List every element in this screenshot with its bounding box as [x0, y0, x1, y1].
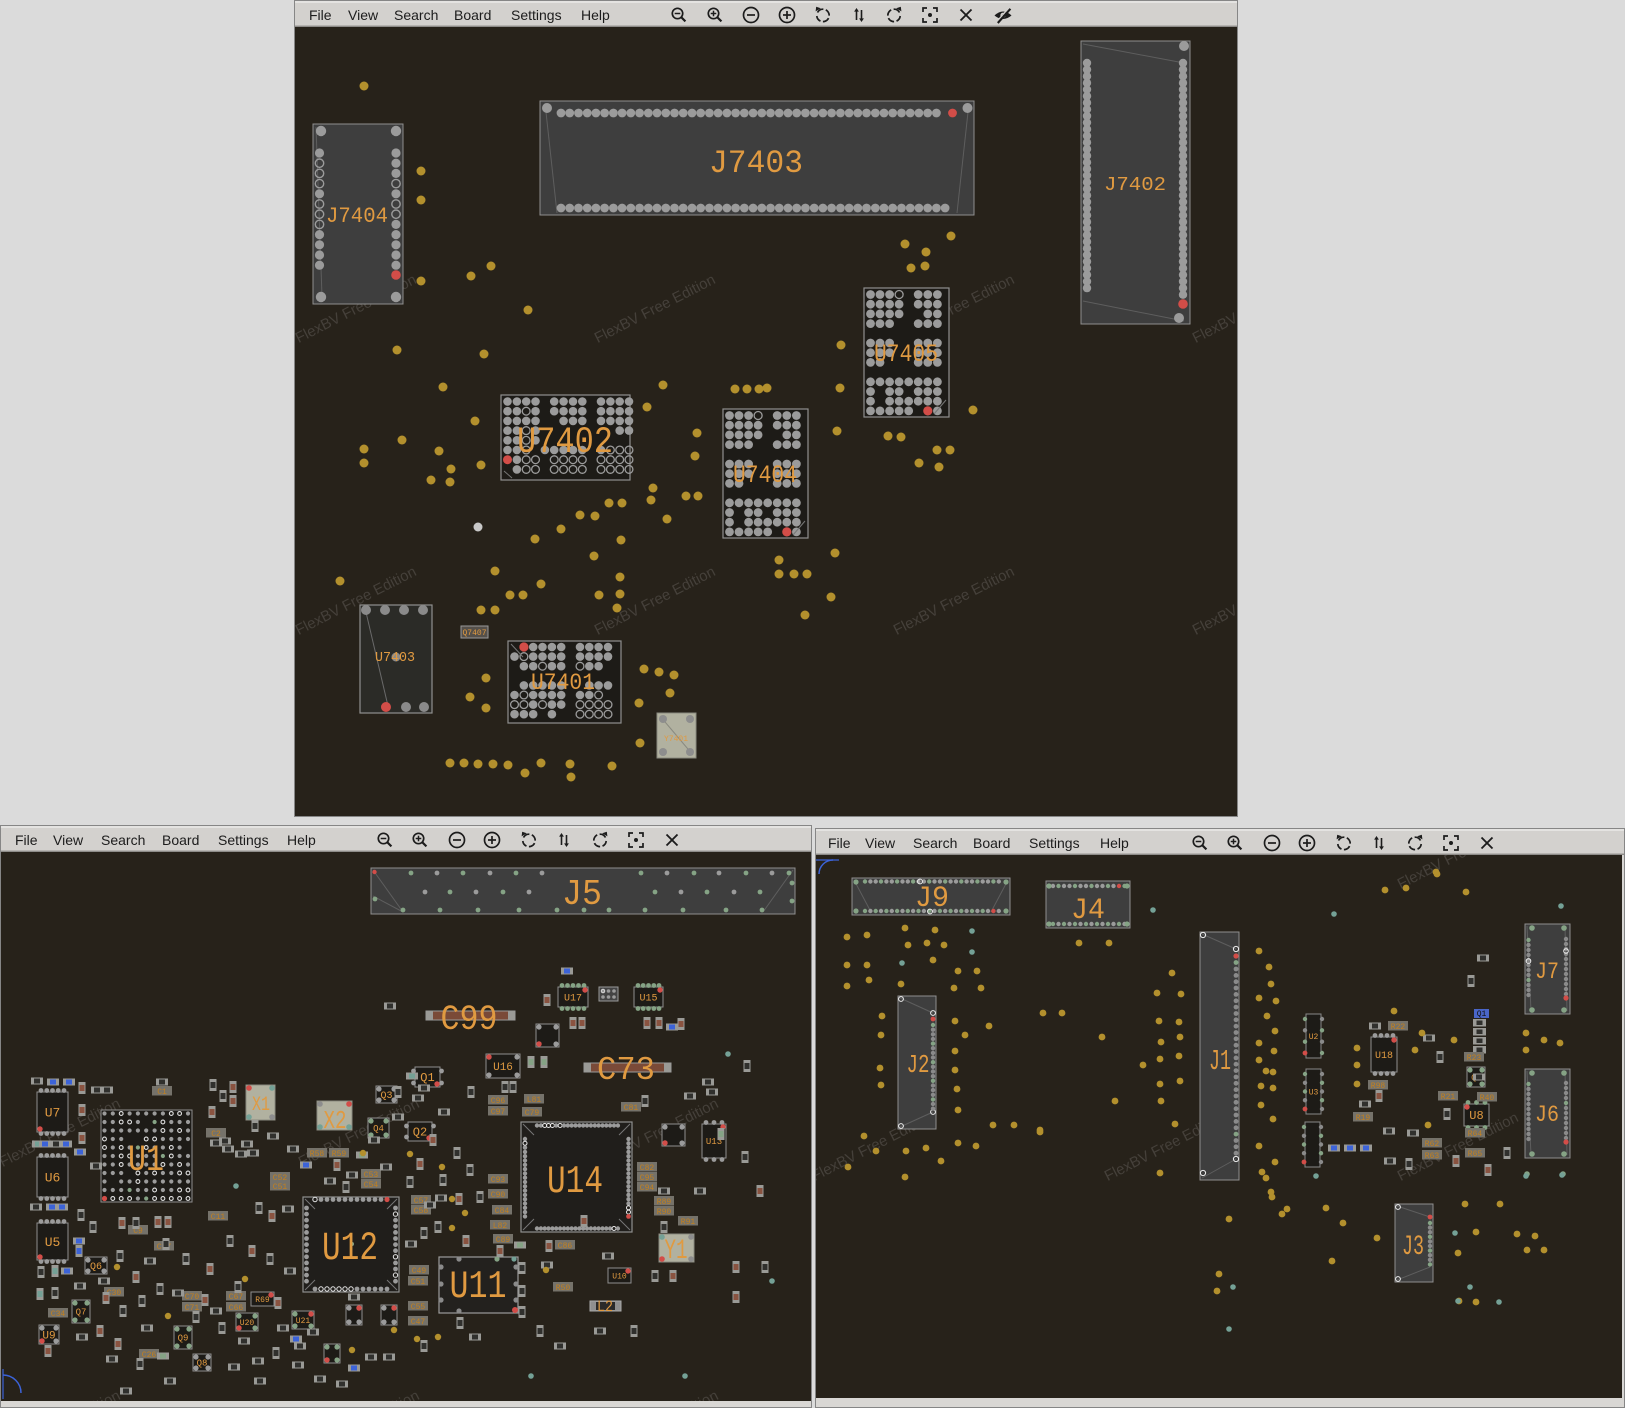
svg-text:R19: R19 — [1356, 1114, 1371, 1123]
svg-text:U11: U11 — [450, 1265, 507, 1309]
svg-text:C34: C34 — [51, 1310, 66, 1319]
svg-text:C26: C26 — [142, 1351, 157, 1360]
svg-text:C11: C11 — [211, 1213, 226, 1222]
svg-text:R98: R98 — [1371, 1082, 1386, 1091]
svg-text:C73: C73 — [597, 1052, 655, 1089]
svg-text:U7405: U7405 — [874, 340, 938, 369]
svg-text:R90: R90 — [657, 1208, 672, 1217]
svg-text:C93: C93 — [491, 1176, 506, 1185]
svg-text:View: View — [348, 7, 379, 23]
svg-text:Help: Help — [287, 832, 316, 848]
svg-text:J1: J1 — [1209, 1045, 1231, 1078]
svg-text:Q1: Q1 — [420, 1071, 434, 1085]
svg-text:C86: C86 — [558, 1242, 573, 1251]
svg-text:J2: J2 — [907, 1050, 930, 1080]
svg-text:Search: Search — [394, 7, 438, 23]
svg-text:C54: C54 — [364, 1181, 379, 1190]
svg-text:J6: J6 — [1535, 1102, 1559, 1128]
svg-text:U15: U15 — [639, 994, 657, 1005]
svg-text:C94: C94 — [640, 1184, 655, 1193]
svg-text:U3: U3 — [1309, 1089, 1319, 1098]
svg-text:J4: J4 — [1071, 894, 1105, 928]
svg-text:U7402: U7402 — [517, 422, 613, 464]
svg-text:J7403: J7403 — [709, 145, 803, 182]
svg-text:L2: L2 — [597, 1298, 613, 1316]
svg-text:Help: Help — [581, 7, 610, 23]
svg-text:R59: R59 — [332, 1150, 347, 1159]
svg-text:U10: U10 — [612, 1272, 627, 1281]
svg-text:Board: Board — [973, 835, 1010, 851]
svg-text:C96: C96 — [491, 1097, 506, 1106]
svg-text:J7404: J7404 — [326, 204, 388, 229]
svg-text:J3: J3 — [1402, 1232, 1424, 1263]
svg-text:U16: U16 — [493, 1062, 513, 1074]
svg-text:Y1: Y1 — [665, 1236, 688, 1267]
svg-text:Q9: Q9 — [178, 1334, 189, 1344]
svg-text:C95: C95 — [640, 1174, 655, 1183]
svg-text:U18: U18 — [1375, 1051, 1393, 1062]
svg-text:U8: U8 — [1469, 1109, 1483, 1123]
svg-text:C82: C82 — [640, 1164, 655, 1173]
svg-text:Help: Help — [1100, 835, 1129, 851]
svg-text:L82: L82 — [493, 1222, 508, 1231]
svg-text:Q8: Q8 — [197, 1359, 208, 1369]
svg-text:Settings: Settings — [218, 832, 269, 848]
svg-text:R64: R64 — [1468, 1130, 1483, 1139]
svg-text:U7: U7 — [45, 1106, 61, 1121]
svg-text:C89: C89 — [496, 1236, 511, 1245]
svg-text:J7402: J7402 — [1104, 174, 1166, 196]
svg-text:R50: R50 — [556, 1284, 571, 1293]
svg-text:C1: C1 — [157, 1088, 167, 1097]
svg-text:U2: U2 — [1309, 1033, 1319, 1042]
svg-text:C47: C47 — [411, 1318, 426, 1327]
svg-text:R69: R69 — [255, 1296, 270, 1305]
svg-text:R91: R91 — [681, 1218, 696, 1227]
svg-text:U9: U9 — [42, 1330, 55, 1342]
svg-text:U5: U5 — [45, 1235, 61, 1250]
svg-text:U1: U1 — [128, 1140, 164, 1182]
svg-text:U20: U20 — [240, 1319, 255, 1328]
svg-text:Search: Search — [101, 832, 145, 848]
svg-text:C97: C97 — [491, 1108, 506, 1117]
svg-text:J9: J9 — [915, 882, 949, 916]
svg-text:Search: Search — [913, 835, 957, 851]
svg-text:U14: U14 — [547, 1160, 603, 1204]
svg-text:X2: X2 — [324, 1106, 347, 1136]
svg-text:U21: U21 — [296, 1317, 311, 1326]
svg-text:U7401: U7401 — [531, 670, 595, 696]
svg-text:U7404: U7404 — [733, 461, 797, 490]
svg-text:C99: C99 — [441, 1000, 498, 1040]
svg-text:Board: Board — [162, 832, 199, 848]
svg-text:C84: C84 — [495, 1207, 510, 1216]
svg-text:Q6: Q6 — [90, 1262, 102, 1273]
svg-text:U12: U12 — [322, 1227, 378, 1272]
svg-text:C79: C79 — [525, 1109, 540, 1118]
svg-text:R22: R22 — [1391, 1023, 1406, 1032]
svg-text:C67: C67 — [229, 1293, 244, 1302]
svg-text:C51: C51 — [411, 1278, 426, 1287]
svg-text:C81: C81 — [624, 1104, 639, 1113]
svg-text:C49: C49 — [412, 1267, 427, 1276]
svg-text:U6: U6 — [45, 1171, 61, 1186]
svg-text:File: File — [309, 7, 332, 23]
svg-text:C53: C53 — [364, 1171, 379, 1180]
svg-text:Board: Board — [454, 7, 491, 23]
svg-text:C55: C55 — [411, 1303, 426, 1312]
svg-text:U17: U17 — [564, 994, 582, 1005]
svg-text:Settings: Settings — [511, 7, 562, 23]
svg-text:J5: J5 — [562, 874, 602, 915]
svg-text:R89: R89 — [657, 1198, 672, 1207]
svg-text:Q2: Q2 — [413, 1126, 427, 1140]
svg-text:Q7407: Q7407 — [462, 629, 486, 638]
svg-text:J7: J7 — [1535, 959, 1559, 985]
svg-text:R40: R40 — [1480, 1094, 1495, 1103]
svg-text:C66: C66 — [229, 1304, 244, 1313]
svg-text:Q1: Q1 — [1477, 1010, 1487, 1019]
svg-text:R23: R23 — [1467, 1054, 1482, 1063]
svg-text:C51: C51 — [273, 1183, 288, 1192]
svg-text:File: File — [15, 832, 38, 848]
svg-text:Q4: Q4 — [373, 1124, 384, 1134]
svg-text:C90: C90 — [491, 1191, 506, 1200]
svg-text:View: View — [53, 832, 84, 848]
svg-text:R21: R21 — [1441, 1093, 1456, 1102]
svg-text:Y7401: Y7401 — [664, 735, 688, 744]
svg-text:File: File — [828, 835, 851, 851]
svg-text:R62: R62 — [1425, 1140, 1440, 1149]
svg-text:C70: C70 — [185, 1293, 200, 1302]
svg-text:R63: R63 — [1425, 1152, 1440, 1161]
svg-text:R65: R65 — [1468, 1150, 1483, 1159]
svg-text:Q3: Q3 — [380, 1091, 392, 1102]
svg-text:U7403: U7403 — [375, 651, 415, 666]
svg-text:Q7: Q7 — [76, 1308, 87, 1318]
svg-text:X1: X1 — [252, 1094, 270, 1117]
svg-text:Settings: Settings — [1029, 835, 1080, 851]
svg-text:View: View — [865, 835, 896, 851]
svg-text:L81: L81 — [527, 1096, 542, 1105]
svg-text:R58: R58 — [310, 1150, 325, 1159]
